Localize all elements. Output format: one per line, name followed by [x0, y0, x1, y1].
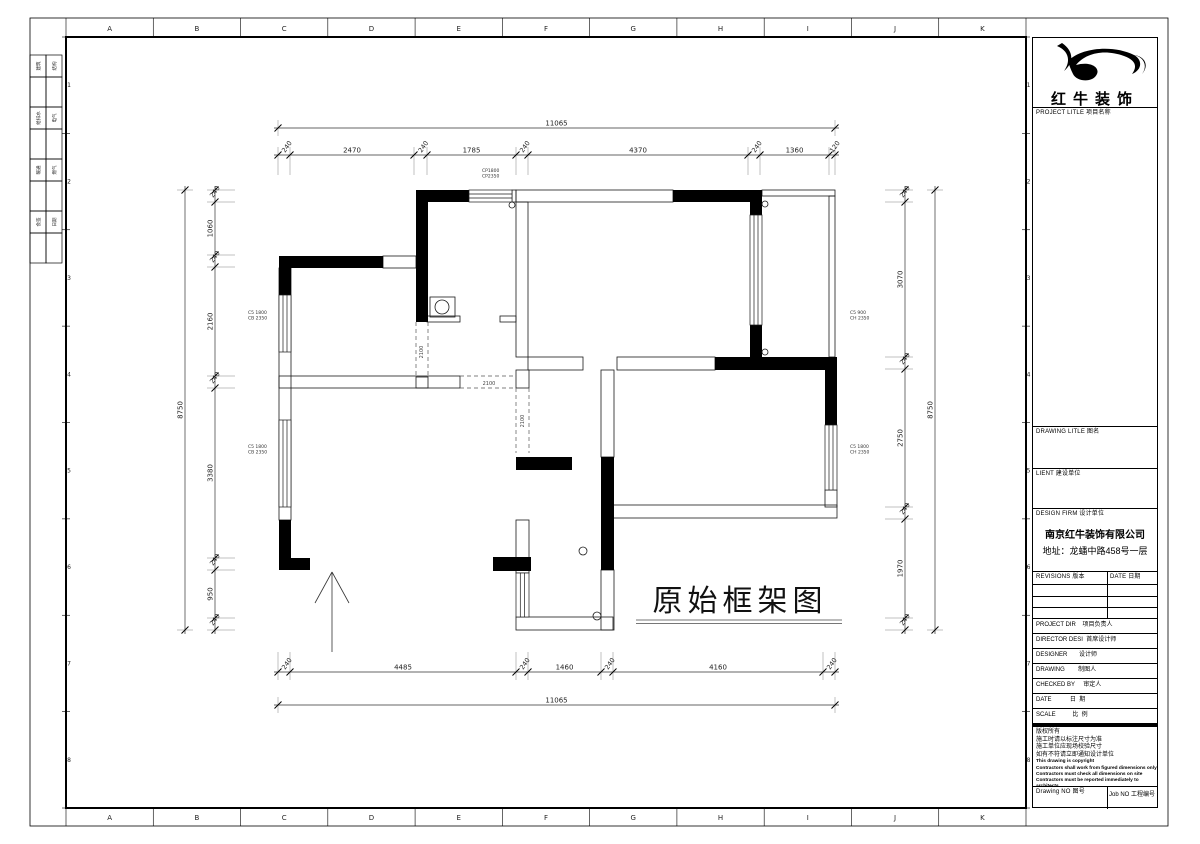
window-bathroom	[516, 573, 529, 617]
svg-text:CP1800CP2350: CP1800CP2350	[482, 168, 499, 180]
svg-text:J: J	[893, 814, 896, 822]
svg-text:1970: 1970	[897, 560, 905, 578]
svg-text:给排水: 给排水	[35, 111, 42, 125]
svg-text:日期: 日期	[52, 217, 58, 226]
svg-text:1360: 1360	[786, 147, 804, 155]
svg-text:6: 6	[1027, 564, 1031, 571]
svg-text:7: 7	[1027, 660, 1031, 667]
title-block-row: DRAWING 制图人	[1033, 663, 1157, 678]
entry-arrow	[315, 572, 349, 652]
svg-text:D: D	[369, 814, 374, 822]
svg-text:1060: 1060	[207, 220, 215, 238]
svg-text:240: 240	[208, 249, 222, 264]
svg-text:F: F	[544, 814, 548, 822]
svg-text:4160: 4160	[709, 664, 727, 672]
revisions-date-label: DATE 日期	[1107, 572, 1141, 581]
svg-text:240: 240	[208, 612, 222, 627]
plan-title-group: 原始框架图	[636, 584, 842, 624]
svg-text:K: K	[980, 814, 985, 822]
svg-text:240: 240	[208, 184, 222, 199]
firm-address: 地址：龙蟠中路458号一层	[1033, 544, 1157, 557]
svg-text:H: H	[718, 814, 723, 822]
drawing-title-label: DRAWING LITLE 图名	[1033, 427, 1157, 436]
title-block-row: DESIGNER 设计师	[1033, 648, 1157, 663]
drain-icon	[593, 612, 601, 620]
svg-text:A: A	[107, 25, 112, 33]
signoff-table: 建筑结构给排水电气暖通燃气会签日期	[30, 55, 62, 263]
svg-text:3: 3	[1027, 275, 1031, 282]
copyright-line: Contractors shall work from figured dime…	[1036, 766, 1157, 772]
title-block-row: PROJECT DIR 项目负责人	[1033, 618, 1157, 633]
copyright-section: 版权所有施工时请以标注尺寸为准施工单位应现场校验尺寸如有不符请立即通知设计单位 …	[1033, 727, 1157, 786]
job-no-label: Job NO 工程编号	[1109, 789, 1155, 798]
svg-text:240: 240	[518, 656, 532, 671]
title-block-row: DATE 日 期	[1033, 693, 1157, 708]
svg-text:暖通: 暖通	[35, 165, 42, 174]
svg-text:E: E	[457, 814, 461, 822]
svg-text:2: 2	[67, 179, 71, 186]
project-title-label: PROJECT LITLE 项目名称	[1033, 108, 1157, 117]
svg-text:2: 2	[1027, 179, 1031, 186]
svg-text:A: A	[107, 814, 112, 822]
svg-text:240: 240	[898, 612, 912, 627]
window-tags: CP1800CP2350C5 1800CB 2350C5 1800CB 2350…	[248, 168, 870, 456]
windows	[279, 190, 837, 617]
svg-text:11065: 11065	[545, 697, 567, 705]
svg-text:240: 240	[603, 656, 617, 671]
signature-rows: PROJECT DIR 项目负责人DIRECTOR DESI 首席设计师DESI…	[1033, 618, 1157, 723]
svg-text:C5 1800CH 2350: C5 1800CH 2350	[850, 444, 870, 456]
drawing-number-section: Drawing NO 图号 Job NO 工程编号	[1033, 786, 1157, 809]
svg-text:950: 950	[207, 587, 215, 600]
svg-text:240: 240	[898, 501, 912, 516]
svg-text:结构: 结构	[51, 61, 58, 70]
svg-text:G: G	[631, 25, 636, 33]
svg-text:240: 240	[898, 351, 912, 366]
svg-text:2750: 2750	[897, 429, 905, 447]
svg-text:B: B	[195, 814, 200, 822]
copyright-cn: 版权所有施工时请以标注尺寸为准施工单位应现场校验尺寸如有不符请立即通知设计单位	[1036, 729, 1157, 759]
svg-text:I: I	[807, 25, 809, 33]
svg-text:8: 8	[1027, 757, 1031, 764]
svg-text:C5 1800CB 2350: C5 1800CB 2350	[248, 444, 267, 456]
svg-text:240: 240	[825, 656, 839, 671]
svg-text:C5 1800CB 2350: C5 1800CB 2350	[248, 310, 267, 322]
title-block-row: SCALE 比 例	[1033, 708, 1157, 723]
title-block-row: DIRECTOR DESI 首席设计师	[1033, 633, 1157, 648]
svg-text:240: 240	[417, 139, 431, 154]
svg-text:2100: 2100	[520, 415, 526, 428]
svg-text:6: 6	[67, 564, 71, 571]
svg-text:3380: 3380	[207, 464, 215, 482]
svg-text:1785: 1785	[463, 147, 481, 155]
design-firm-section: DESIGN FIRM 设计单位 南京红牛装饰有限公司 地址：龙蟠中路458号一…	[1033, 508, 1157, 571]
svg-text:G: G	[631, 814, 636, 822]
svg-text:B: B	[195, 25, 200, 33]
drain-icon	[579, 547, 587, 555]
svg-text:J: J	[893, 25, 896, 33]
svg-text:H: H	[718, 25, 723, 33]
svg-text:D: D	[369, 25, 374, 33]
svg-text:1: 1	[67, 82, 71, 89]
drawing-title-section: DRAWING LITLE 图名	[1033, 426, 1157, 468]
svg-text:2100: 2100	[419, 346, 425, 359]
svg-text:4485: 4485	[394, 664, 412, 672]
svg-text:会签: 会签	[35, 217, 42, 226]
svg-text:2470: 2470	[343, 147, 361, 155]
title-block: 红牛装饰 PROJECT LITLE 项目名称 DRAWING LITLE 图名…	[1032, 37, 1158, 808]
svg-text:4: 4	[1027, 371, 1031, 378]
svg-text:C: C	[282, 814, 287, 822]
svg-text:K: K	[980, 25, 985, 33]
svg-text:240: 240	[208, 552, 222, 567]
drawing-sheet: AABBCCDDEEFFGGHHIIJJKK1122334455667788 建…	[0, 0, 1200, 844]
window-left-upper	[279, 295, 291, 352]
svg-text:240: 240	[750, 139, 764, 154]
window-balcony-divider	[750, 215, 762, 325]
window-right-bedroom	[825, 425, 837, 490]
svg-text:8750: 8750	[177, 401, 185, 419]
window-kitchen-top	[469, 190, 512, 202]
svg-text:2100: 2100	[483, 381, 496, 387]
copyright-line: 版权所有	[1036, 729, 1157, 737]
dashed-openings	[416, 322, 529, 453]
window-left-lower	[279, 420, 291, 507]
svg-text:5: 5	[1027, 468, 1031, 475]
svg-text:240: 240	[280, 139, 294, 154]
svg-text:8750: 8750	[927, 401, 935, 419]
svg-text:240: 240	[898, 184, 912, 199]
logo-section: 红牛装饰	[1033, 38, 1157, 107]
svg-text:E: E	[457, 25, 461, 33]
client-label: LIENT 建设单位	[1033, 469, 1157, 478]
svg-text:I: I	[807, 814, 809, 822]
svg-text:4370: 4370	[629, 147, 647, 155]
svg-text:F: F	[544, 25, 548, 33]
svg-text:240: 240	[208, 370, 222, 385]
svg-text:2160: 2160	[207, 313, 215, 331]
firm-name: 南京红牛装饰有限公司	[1033, 526, 1157, 541]
logo-text: 红牛装饰	[1033, 88, 1157, 109]
svg-text:燃气: 燃气	[51, 165, 58, 174]
svg-text:建筑: 建筑	[35, 61, 42, 70]
revisions-section: REVISIONS 版本 DATE 日期	[1033, 571, 1157, 618]
svg-text:3070: 3070	[897, 271, 905, 289]
svg-text:电气: 电气	[51, 113, 58, 122]
project-title-section: PROJECT LITLE 项目名称	[1033, 107, 1157, 426]
svg-text:1: 1	[1027, 82, 1031, 89]
svg-text:11065: 11065	[545, 120, 567, 128]
svg-text:C: C	[282, 25, 287, 33]
svg-text:1460: 1460	[556, 664, 574, 672]
client-section: LIENT 建设单位	[1033, 468, 1157, 508]
svg-text:240: 240	[280, 656, 294, 671]
svg-text:7: 7	[67, 660, 71, 667]
plan-title: 原始框架图	[653, 584, 828, 619]
revisions-label: REVISIONS 版本	[1033, 572, 1085, 581]
svg-text:4: 4	[67, 371, 71, 378]
drain-icon	[762, 201, 768, 207]
copyright-line: 施工单位应现场校验尺寸	[1036, 744, 1157, 752]
svg-text:3: 3	[67, 275, 71, 282]
svg-text:240: 240	[518, 139, 532, 154]
svg-text:120: 120	[828, 139, 842, 154]
svg-text:5: 5	[67, 468, 71, 475]
svg-text:8: 8	[67, 757, 71, 764]
design-firm-label: DESIGN FIRM 设计单位	[1033, 509, 1157, 518]
drain-icon	[509, 202, 515, 208]
drain-icon	[762, 349, 768, 355]
svg-text:C5 900CH 2350: C5 900CH 2350	[850, 310, 870, 322]
bull-logo-icon	[1040, 41, 1150, 85]
flue-icon	[435, 300, 449, 314]
title-block-row: CHECKED BY 审定人	[1033, 678, 1157, 693]
floor-plan-canvas: AABBCCDDEEFFGGHHIIJJKK1122334455667788 建…	[0, 0, 1200, 844]
